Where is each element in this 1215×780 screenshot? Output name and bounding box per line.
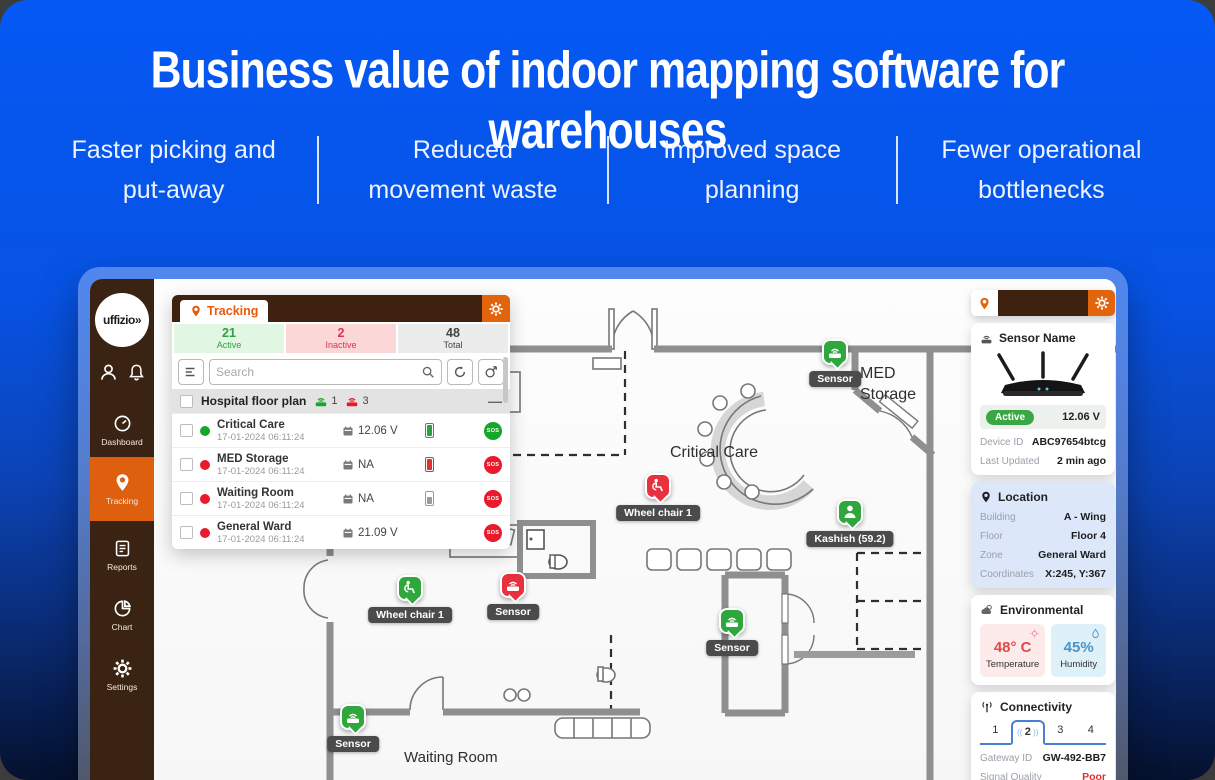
temperature-value: 48° C: [986, 639, 1039, 656]
row-checkbox[interactable]: [180, 492, 193, 505]
online-count: 1: [314, 394, 337, 408]
detail-settings-button[interactable]: [1088, 290, 1115, 316]
gateway-tabs: 1 (( 2 )) 3 4: [980, 720, 1106, 745]
humidity-droplet-icon: [1090, 628, 1101, 639]
building-label: Building: [980, 512, 1016, 523]
poster-background: Business value of indoor mapping softwar…: [0, 0, 1215, 780]
marker-label: Wheel chair 1: [368, 607, 452, 623]
location-pin-icon: [980, 491, 992, 503]
sos-badge[interactable]: SOS: [484, 524, 502, 542]
coordinates-label: Coordinates: [980, 569, 1034, 580]
pin-icon: [978, 297, 991, 310]
sos-badge[interactable]: SOS: [484, 422, 502, 440]
group-checkbox[interactable]: [180, 395, 193, 408]
tab-tracking[interactable]: Tracking: [180, 300, 268, 322]
gateway-tab-1[interactable]: 1: [980, 720, 1011, 743]
filter-button[interactable]: [178, 359, 204, 385]
humidity-label: Humidity: [1057, 659, 1100, 670]
navigate-icon: [484, 365, 498, 379]
voltage-value: NA: [342, 493, 412, 505]
location-card: Location Building A - Wing Floor Floor 4…: [971, 482, 1115, 588]
person-marker[interactable]: [837, 499, 863, 525]
humidity-tile: 45% Humidity: [1051, 624, 1106, 677]
sidebar-item-dashboard[interactable]: Dashboard: [90, 403, 154, 457]
humidity-value: 45%: [1057, 639, 1100, 656]
gateway-tab-4[interactable]: 4: [1076, 720, 1107, 743]
device-id-value: ABC97654btcg: [1032, 436, 1106, 448]
app-window: uffizio» Dashboard Tracking: [90, 279, 1116, 780]
gateway-id-label: Gateway ID: [980, 753, 1032, 764]
room-label-critical-care: Critical Care: [670, 442, 758, 463]
calendar-icon: [342, 527, 354, 539]
gear-icon: [489, 302, 503, 316]
offline-count: 3: [345, 394, 368, 408]
gateway-tab-3[interactable]: 3: [1045, 720, 1076, 743]
router-icon: [505, 577, 521, 593]
gateway-tab-2[interactable]: (( 2 )): [1011, 720, 1046, 745]
room-label-waiting-room: Waiting Room: [404, 747, 498, 768]
battery-icon: [425, 491, 434, 506]
table-row[interactable]: General Ward 17-01-2024 06:11:24 21.09 V…: [172, 515, 510, 549]
calendar-icon: [342, 425, 354, 437]
status-badge: Active: [986, 410, 1034, 425]
benefit-fewer-bottlenecks: Fewer operationalbottlenecks: [898, 130, 1185, 210]
row-checkbox[interactable]: [180, 526, 193, 539]
voltage-value: 12.06 V: [1062, 411, 1100, 423]
calendar-icon: [342, 493, 354, 505]
sidebar-item-settings[interactable]: Settings: [90, 649, 154, 701]
status-summary: 21 Active 2 Inactive 48 Total: [172, 322, 510, 355]
marker-label: Sensor: [706, 640, 758, 656]
search-input[interactable]: [216, 365, 421, 379]
sensor-status-row: Active 12.06 V: [980, 405, 1106, 429]
marker-label: Sensor: [809, 371, 861, 387]
sidebar-item-reports[interactable]: Reports: [90, 529, 154, 581]
temperature-icon: [1029, 628, 1040, 639]
router-online-icon: [314, 394, 328, 408]
wheelchair-marker[interactable]: [645, 473, 671, 499]
last-updated-label: Last Updated: [980, 456, 1040, 467]
reports-icon: [113, 539, 132, 558]
sidebar-item-chart[interactable]: Chart: [90, 589, 154, 641]
connectivity-card: Connectivity 1 (( 2 )) 3 4 Gateway ID GW…: [971, 692, 1115, 780]
person-icon: [842, 504, 858, 520]
sensor-marker[interactable]: [822, 339, 848, 365]
marker-label: Sensor: [327, 736, 379, 752]
router-icon: [724, 613, 740, 629]
sos-badge[interactable]: SOS: [484, 456, 502, 474]
table-row[interactable]: MED Storage 17-01-2024 06:11:24 NA SOS: [172, 447, 510, 481]
room-label-med-storage: MEDStorage: [860, 363, 916, 405]
bell-icon[interactable]: [127, 363, 146, 382]
sensor-detail-panel: Sensor Name Active 12.06 V Device: [971, 290, 1115, 780]
temperature-label: Temperature: [986, 659, 1039, 670]
sensor-marker[interactable]: [719, 608, 745, 634]
status-dot: [200, 426, 210, 436]
router-image: [991, 351, 1095, 401]
group-header-row[interactable]: Hospital floor plan 1 3 —: [172, 389, 510, 413]
row-checkbox[interactable]: [180, 458, 193, 471]
panel-settings-button[interactable]: [482, 295, 510, 322]
sidebar: uffizio» Dashboard Tracking: [90, 279, 154, 780]
device-id-label: Device ID: [980, 437, 1023, 448]
router-icon: [827, 344, 843, 360]
zone-value: General Ward: [1038, 549, 1106, 561]
scrollbar-thumb[interactable]: [503, 357, 508, 403]
marker-label: Kashish (59.2): [806, 531, 893, 547]
antenna-icon: [980, 700, 994, 714]
battery-icon: [425, 457, 434, 472]
location-card-title: Location: [998, 490, 1048, 504]
chart-icon: [113, 599, 132, 618]
connectivity-card-title: Connectivity: [1000, 700, 1072, 714]
temperature-tile: 48° C Temperature: [980, 624, 1045, 677]
floor-value: Floor 4: [1071, 530, 1106, 542]
voltage-value: NA: [342, 459, 412, 471]
marker-label: Wheel chair 1: [616, 505, 700, 521]
sensor-marker[interactable]: [500, 572, 526, 598]
router-offline-icon: [345, 394, 359, 408]
app-window-frame: uffizio» Dashboard Tracking: [78, 267, 1128, 780]
status-dot: [200, 460, 210, 470]
settings-gear-icon: [113, 659, 132, 678]
voltage-value: 12.06 V: [342, 425, 412, 437]
detail-tab[interactable]: [971, 290, 998, 316]
sensor-card-title: Sensor Name: [999, 331, 1076, 345]
gateway-id-value: GW-492-BB7: [1043, 752, 1106, 764]
bathroom: [520, 523, 593, 576]
wheelchair-marker[interactable]: [397, 575, 423, 601]
refresh-icon: [453, 365, 467, 379]
device-icon: [980, 332, 993, 345]
sos-badge[interactable]: SOS: [484, 490, 502, 508]
sensor-card: Sensor Name Active 12.06 V Device: [971, 323, 1115, 475]
inactive-stat[interactable]: 2 Inactive: [286, 324, 396, 353]
table-row[interactable]: Critical Care 17-01-2024 06:11:24 12.06 …: [172, 413, 510, 447]
benefits-row: Faster picking andput-away Reducedmoveme…: [30, 130, 1185, 210]
coordinates-value: X:245, Y:367: [1045, 568, 1106, 580]
calendar-icon: [342, 459, 354, 471]
share-location-button[interactable]: [478, 359, 504, 385]
detail-panel-header: [971, 290, 1115, 316]
dashboard-icon: [113, 414, 132, 433]
wheelchair-icon: [402, 580, 418, 596]
detail-header-bar: [998, 290, 1088, 316]
user-icon[interactable]: [99, 363, 118, 382]
uffizio-logo: uffizio»: [95, 293, 149, 347]
voltage-value: 21.09 V: [342, 527, 412, 539]
last-updated-value: 2 min ago: [1057, 455, 1106, 467]
battery-icon: [425, 423, 434, 438]
total-stat[interactable]: 48 Total: [398, 324, 508, 353]
corridor-wall-stub: [794, 651, 915, 658]
search-icon[interactable]: [421, 365, 435, 379]
tracking-pin-icon: [113, 473, 132, 492]
benefit-space-planning: Improved spaceplanning: [609, 130, 896, 210]
collapse-icon[interactable]: —: [488, 393, 502, 409]
gear-icon: [1095, 296, 1109, 310]
sidebar-menu: Dashboard Tracking Reports Chart: [90, 403, 154, 701]
active-stat[interactable]: 21 Active: [174, 324, 284, 353]
status-dot: [200, 528, 210, 538]
tracking-panel: Tracking 21 Active 2 Inactive: [172, 295, 510, 549]
environmental-card: Environmental 48° C Temperature 45% Humi…: [971, 595, 1115, 685]
sidebar-item-tracking[interactable]: Tracking: [90, 457, 154, 521]
signal-quality-value: Poor: [1082, 771, 1106, 780]
search-box: [209, 359, 442, 385]
filter-icon: [184, 365, 198, 379]
refresh-button[interactable]: [447, 359, 473, 385]
zone-label: Zone: [980, 550, 1003, 561]
status-dot: [200, 494, 210, 504]
benefit-reduced-waste: Reducedmovement waste: [319, 130, 606, 210]
signal-quality-label: Signal Quality: [980, 772, 1042, 780]
wheelchair-icon: [650, 478, 666, 494]
row-checkbox[interactable]: [180, 424, 193, 437]
sensor-marker[interactable]: [340, 704, 366, 730]
table-row[interactable]: Waiting Room 17-01-2024 06:11:24 NA SOS: [172, 481, 510, 515]
router-icon: [345, 709, 361, 725]
search-row: [172, 355, 510, 389]
tracking-panel-header: Tracking: [172, 295, 510, 322]
environmental-card-title: Environmental: [1000, 603, 1083, 617]
building-value: A - Wing: [1064, 511, 1106, 523]
benefit-faster-picking: Faster picking andput-away: [30, 130, 317, 210]
cloud-sun-icon: [980, 603, 994, 617]
pin-icon: [190, 305, 202, 317]
floor-label: Floor: [980, 531, 1003, 542]
marker-label: Sensor: [487, 604, 539, 620]
